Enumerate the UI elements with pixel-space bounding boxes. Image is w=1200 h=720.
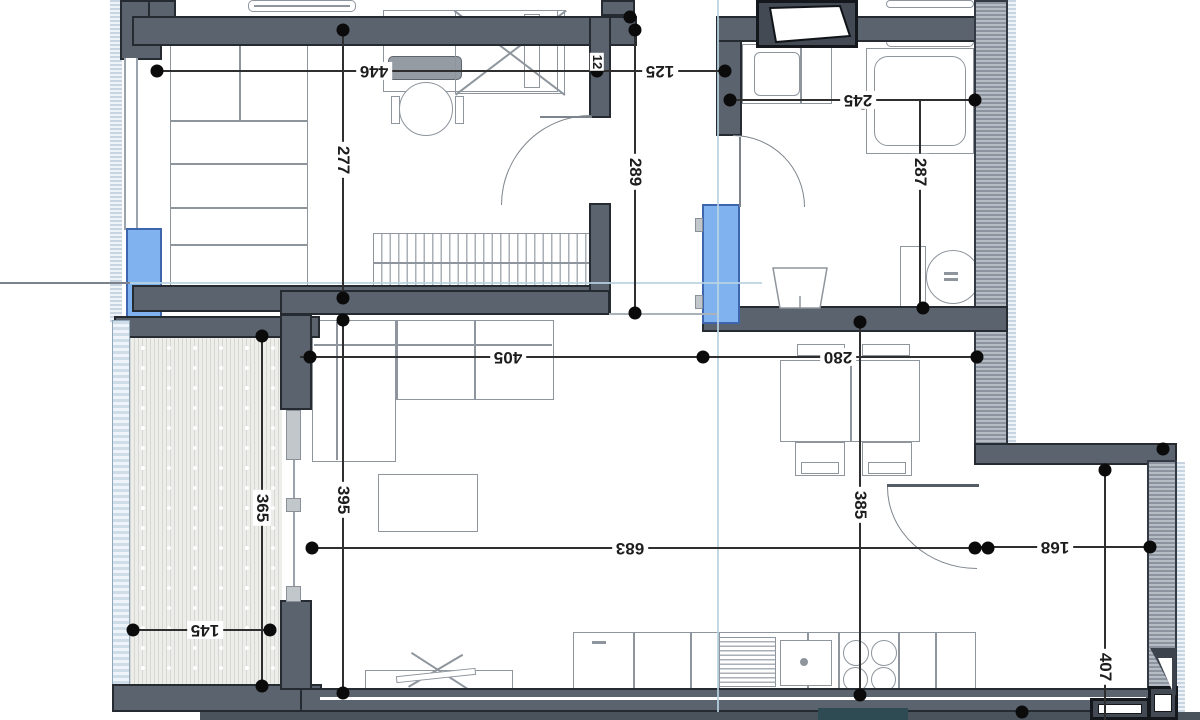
dim-balcony-depth: 365 xyxy=(253,490,271,526)
dim-balcony-width: 145 xyxy=(187,621,223,639)
dim-living-depth-left: 395 xyxy=(334,482,352,518)
dimension-endpoint-dot xyxy=(151,65,164,78)
dimension-endpoint-dot xyxy=(629,24,642,37)
dimension-endpoint-dot xyxy=(917,302,930,315)
dimension-endpoint-dot xyxy=(256,330,269,343)
dimension-endpoint-dot xyxy=(306,542,319,555)
dim-living-total-width: 683 xyxy=(612,539,648,557)
dimension-endpoint-dot xyxy=(969,542,982,555)
dimension-endpoint-dot xyxy=(337,24,350,37)
dim-living-width-left: 405 xyxy=(490,348,526,366)
dimension-endpoint-dot xyxy=(629,307,642,320)
dimension-endpoint-dot xyxy=(337,314,350,327)
dimension-endpoint-dot xyxy=(127,624,140,637)
dimension-endpoint-dot xyxy=(969,94,982,107)
dim-hall-width: 125 xyxy=(642,62,678,80)
dimension-endpoint-dot xyxy=(854,689,867,702)
section-line-left-segment xyxy=(0,282,130,284)
dim-bedroom-width: 446 xyxy=(356,62,392,80)
dimension-endpoint-dot xyxy=(1144,541,1157,554)
floor-plan: 446 277 125 289 12 245 287 405 280 683 3… xyxy=(0,0,1200,720)
wall-corner-dot xyxy=(1157,443,1170,456)
dim-line-405-280 xyxy=(300,356,977,358)
dim-bathroom-depth: 287 xyxy=(911,154,929,190)
dim-wall-thickness: 12 xyxy=(590,53,604,71)
dimension-endpoint-dot xyxy=(337,687,350,700)
dimension-endpoint-dot xyxy=(719,65,732,78)
dimension-endpoint-dot xyxy=(1099,464,1112,477)
dim-entry-niche-width: 168 xyxy=(1037,538,1073,556)
wall-corner-dot xyxy=(1016,706,1029,719)
section-line-horizontal xyxy=(130,282,762,284)
dim-hall-depth: 289 xyxy=(626,154,644,190)
dimension-endpoint-dot xyxy=(697,351,710,364)
dim-entry-niche-depth: 407 xyxy=(1096,649,1114,685)
shaft-vent-symbol xyxy=(770,6,850,42)
dimension-endpoint-dot xyxy=(854,316,867,329)
dim-line-287 xyxy=(919,100,921,312)
dimension-endpoint-dot xyxy=(724,94,737,107)
dim-dining-width: 280 xyxy=(820,348,856,366)
plan-detail-overlay xyxy=(0,0,1200,720)
dimension-endpoint-dot xyxy=(624,11,637,24)
dimension-endpoint-dot xyxy=(264,624,277,637)
dim-bathroom-width: 245 xyxy=(840,91,876,109)
corner-door-wedge xyxy=(1150,648,1176,696)
dim-dining-depth: 385 xyxy=(851,487,869,523)
dimension-endpoint-dot xyxy=(982,542,995,555)
dim-bedroom-depth: 277 xyxy=(334,142,352,178)
dimension-endpoint-dot xyxy=(256,680,269,693)
dimension-endpoint-dot xyxy=(337,292,350,305)
dimension-endpoint-dot xyxy=(304,351,317,364)
dimension-endpoint-dot xyxy=(971,351,984,364)
